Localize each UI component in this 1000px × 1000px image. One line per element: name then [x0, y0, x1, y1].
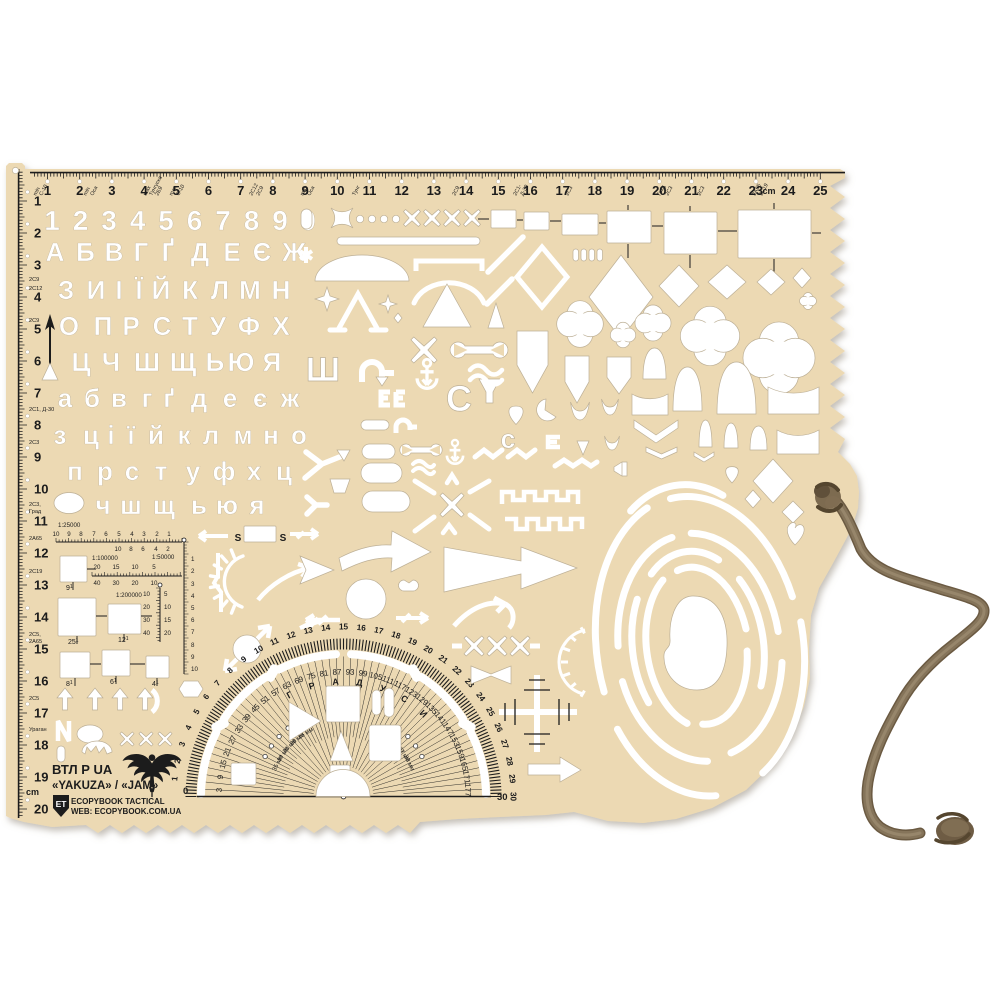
svg-text:Ш: Ш — [134, 347, 160, 377]
svg-text:5: 5 — [191, 605, 195, 612]
svg-text:19: 19 — [34, 770, 48, 785]
svg-text:а: а — [58, 383, 73, 413]
svg-text:20: 20 — [132, 580, 139, 587]
svg-text:6: 6 — [34, 354, 41, 369]
svg-text:5: 5 — [117, 531, 121, 538]
svg-text:Щ: Щ — [170, 347, 197, 377]
svg-text:14: 14 — [34, 610, 49, 625]
svg-text:В: В — [105, 237, 124, 267]
svg-text:С: С — [153, 311, 172, 341]
svg-text:10: 10 — [191, 666, 198, 673]
svg-text:п: п — [67, 456, 83, 486]
svg-text:87: 87 — [332, 667, 342, 676]
svg-text:А: А — [332, 677, 340, 687]
svg-text:з: з — [54, 420, 67, 450]
svg-text:1:50000: 1:50000 — [152, 554, 175, 561]
svg-text:6: 6 — [141, 546, 145, 553]
svg-text:7: 7 — [34, 386, 41, 401]
svg-text:5: 5 — [152, 564, 156, 571]
svg-text:10: 10 — [164, 604, 171, 611]
svg-text:Ї: Ї — [134, 275, 143, 305]
svg-text:2: 2 — [76, 183, 83, 198]
svg-text:є: є — [253, 383, 267, 413]
svg-text:ECOPYBOOK TACTICAL: ECOPYBOOK TACTICAL — [71, 797, 165, 806]
svg-text:1: 1 — [34, 194, 41, 209]
svg-text:13: 13 — [34, 578, 48, 593]
svg-text:М: М — [239, 275, 261, 305]
svg-text:15: 15 — [491, 183, 505, 198]
svg-text:д: д — [191, 383, 208, 413]
svg-text:Ураган: Ураган — [29, 727, 47, 733]
svg-text:в: в — [111, 383, 127, 413]
svg-text:щ: щ — [153, 490, 175, 520]
svg-text:Я: Я — [263, 347, 282, 377]
svg-text:7: 7 — [237, 183, 244, 198]
svg-text:Ц: Ц — [72, 347, 91, 377]
svg-text:1:25000: 1:25000 — [58, 522, 81, 529]
svg-text:б: б — [84, 383, 100, 413]
svg-text:ф: ф — [213, 456, 236, 486]
svg-text:17: 17 — [34, 706, 48, 721]
svg-text:2С12: 2С12 — [29, 286, 42, 292]
svg-text:2С19: 2С19 — [29, 569, 42, 575]
svg-text:10: 10 — [151, 580, 158, 587]
svg-text:8: 8 — [269, 183, 276, 198]
svg-text:10: 10 — [143, 591, 150, 598]
svg-text:Ю: Ю — [228, 347, 255, 377]
svg-text:Б: Б — [76, 237, 95, 267]
svg-text:12: 12 — [34, 546, 48, 561]
svg-text:3: 3 — [142, 531, 146, 538]
svg-text:Г: Г — [134, 237, 149, 267]
svg-text:я: я — [248, 490, 264, 520]
svg-text:29: 29 — [507, 774, 517, 784]
svg-text:г: г — [142, 383, 153, 413]
svg-text:ь: ь — [191, 490, 207, 520]
svg-text:е: е — [223, 383, 237, 413]
svg-text:177: 177 — [463, 783, 473, 797]
svg-text:й: й — [148, 420, 164, 450]
svg-text:Т: Т — [182, 311, 198, 341]
svg-text:3: 3 — [191, 581, 195, 588]
svg-text:20: 20 — [143, 604, 150, 611]
svg-text:3: 3 — [101, 205, 117, 236]
svg-text:WEB: ECOPYBOOK.COM.UA: WEB: ECOPYBOOK.COM.UA — [71, 807, 181, 816]
svg-text:Й: Й — [152, 275, 171, 305]
svg-text:10: 10 — [53, 531, 60, 538]
svg-text:Град: Град — [29, 509, 42, 515]
svg-text:с: с — [125, 456, 139, 486]
svg-text:4: 4 — [154, 546, 158, 553]
svg-text:9: 9 — [272, 205, 288, 236]
svg-text:1: 1 — [44, 205, 60, 236]
svg-text:25: 25 — [813, 183, 827, 198]
svg-text:14: 14 — [321, 623, 331, 633]
svg-text:16: 16 — [356, 623, 366, 633]
svg-text:2: 2 — [73, 205, 89, 236]
svg-text:т: т — [155, 456, 168, 486]
svg-text:6: 6 — [187, 205, 203, 236]
svg-text:93: 93 — [345, 667, 355, 676]
svg-text:4: 4 — [130, 531, 134, 538]
svg-text:ц: ц — [83, 420, 99, 450]
svg-text:ц: ц — [276, 456, 292, 486]
svg-text:2: 2 — [191, 568, 195, 575]
svg-text:к: к — [177, 420, 191, 450]
svg-text:2С1, Д-30: 2С1, Д-30 — [29, 407, 54, 413]
svg-text:cm: cm — [26, 787, 39, 797]
svg-text:ж: ж — [280, 383, 300, 413]
svg-text:12: 12 — [394, 183, 408, 198]
svg-text:6: 6 — [205, 183, 212, 198]
svg-text:Ч: Ч — [102, 347, 120, 377]
svg-text:2: 2 — [155, 531, 159, 538]
svg-text:2С3,: 2С3, — [29, 502, 41, 508]
svg-text:30: 30 — [509, 792, 518, 802]
svg-text:ґ: ґ — [163, 383, 175, 413]
svg-text:40: 40 — [94, 580, 101, 587]
svg-text:ю: ю — [216, 490, 238, 520]
svg-text:н: н — [263, 420, 279, 450]
svg-text:6: 6 — [191, 617, 195, 624]
svg-text:Д: Д — [191, 237, 210, 267]
svg-text:30: 30 — [143, 617, 150, 624]
svg-text:Х: Х — [272, 311, 290, 341]
svg-text:Е: Е — [223, 237, 240, 267]
svg-text:S: S — [235, 533, 242, 544]
svg-text:і: і — [107, 420, 114, 450]
svg-text:2С9: 2С9 — [29, 318, 39, 324]
svg-text:11: 11 — [363, 183, 377, 198]
svg-text:3: 3 — [34, 258, 41, 273]
svg-text:S: S — [280, 533, 287, 544]
svg-text:Н: Н — [272, 275, 291, 305]
svg-text:2С5: 2С5 — [29, 696, 39, 702]
svg-text:13: 13 — [427, 183, 441, 198]
svg-text:40: 40 — [143, 630, 150, 637]
svg-text:9: 9 — [67, 531, 71, 538]
svg-text:10: 10 — [115, 546, 122, 553]
svg-text:1: 1 — [191, 556, 195, 563]
svg-text:р: р — [97, 456, 113, 486]
svg-text:7: 7 — [215, 205, 231, 236]
svg-text:7: 7 — [191, 629, 195, 636]
svg-text:9: 9 — [191, 654, 195, 661]
svg-text:4: 4 — [191, 593, 195, 600]
svg-text:4: 4 — [130, 205, 146, 236]
svg-text:ET: ET — [56, 799, 68, 809]
svg-text:8: 8 — [34, 418, 41, 433]
svg-text:6: 6 — [104, 531, 108, 538]
svg-text:C: C — [446, 378, 472, 419]
svg-text:14: 14 — [459, 183, 474, 198]
svg-text:5: 5 — [164, 591, 168, 598]
svg-text:ч: ч — [95, 490, 110, 520]
svg-text:20: 20 — [94, 564, 101, 571]
svg-text:22: 22 — [716, 183, 730, 198]
svg-text:З: З — [58, 275, 74, 305]
svg-text:10: 10 — [132, 564, 139, 571]
svg-text:20: 20 — [34, 802, 48, 817]
svg-text:2А65: 2А65 — [29, 536, 42, 542]
svg-text:8: 8 — [79, 531, 83, 538]
svg-text:Ь: Ь — [206, 347, 225, 377]
svg-text:ї: ї — [126, 420, 135, 450]
svg-text:У: У — [210, 311, 227, 341]
svg-text:о: о — [291, 420, 307, 450]
svg-text:5: 5 — [158, 205, 174, 236]
svg-text:2: 2 — [34, 226, 41, 241]
svg-text:ш: ш — [120, 490, 142, 520]
svg-text:10: 10 — [34, 482, 48, 497]
svg-text:А: А — [46, 237, 65, 267]
svg-text:І: І — [115, 275, 122, 305]
svg-text:15: 15 — [113, 564, 120, 571]
svg-text:3: 3 — [108, 183, 115, 198]
svg-text:2С3: 2С3 — [29, 440, 39, 446]
svg-text:2С9: 2С9 — [29, 277, 39, 283]
svg-text:К: К — [182, 275, 198, 305]
svg-text:Ф: Ф — [238, 311, 260, 341]
svg-text:18: 18 — [588, 183, 602, 198]
svg-text:Ш: Ш — [306, 351, 340, 389]
svg-text:х: х — [247, 456, 262, 486]
svg-text:11: 11 — [34, 514, 48, 529]
svg-text:19: 19 — [620, 183, 634, 198]
svg-text:30: 30 — [497, 792, 508, 803]
svg-text:24: 24 — [781, 183, 796, 198]
svg-text:0: 0 — [183, 786, 188, 797]
svg-text:7: 7 — [92, 531, 96, 538]
svg-text:ВТЛ Р UA: ВТЛ Р UA — [52, 762, 113, 777]
svg-text:у: у — [186, 456, 201, 486]
svg-text:1:100000: 1:100000 — [92, 555, 118, 562]
svg-text:15: 15 — [164, 617, 171, 624]
svg-text:м: м — [233, 420, 252, 450]
svg-text:9: 9 — [34, 450, 41, 465]
svg-text:10: 10 — [330, 183, 344, 198]
svg-text:21: 21 — [684, 183, 698, 198]
svg-text:8: 8 — [129, 546, 133, 553]
svg-text:1: 1 — [167, 531, 171, 538]
svg-text:И: И — [87, 275, 106, 305]
svg-text:2: 2 — [166, 546, 170, 553]
svg-text:1:200000: 1:200000 — [116, 592, 142, 599]
svg-text:Л: Л — [211, 275, 229, 305]
svg-text:2А65: 2А65 — [29, 639, 42, 645]
svg-text:Ґ: Ґ — [162, 237, 175, 267]
svg-text:20: 20 — [164, 630, 171, 637]
svg-text:Є: Є — [253, 237, 272, 267]
svg-text:«YAKUZA» / «JAM»: «YAKUZA» / «JAM» — [52, 780, 158, 792]
svg-text:15: 15 — [339, 623, 349, 632]
svg-text:Р: Р — [122, 311, 139, 341]
svg-text:8: 8 — [244, 205, 260, 236]
svg-text:18: 18 — [34, 738, 48, 753]
svg-text:8: 8 — [191, 642, 195, 649]
svg-text:2С5,: 2С5, — [29, 632, 41, 638]
svg-text:О: О — [59, 311, 79, 341]
svg-text:16: 16 — [34, 674, 48, 689]
svg-text:30: 30 — [113, 580, 120, 587]
svg-text:П: П — [94, 311, 113, 341]
svg-text:л: л — [203, 420, 220, 450]
